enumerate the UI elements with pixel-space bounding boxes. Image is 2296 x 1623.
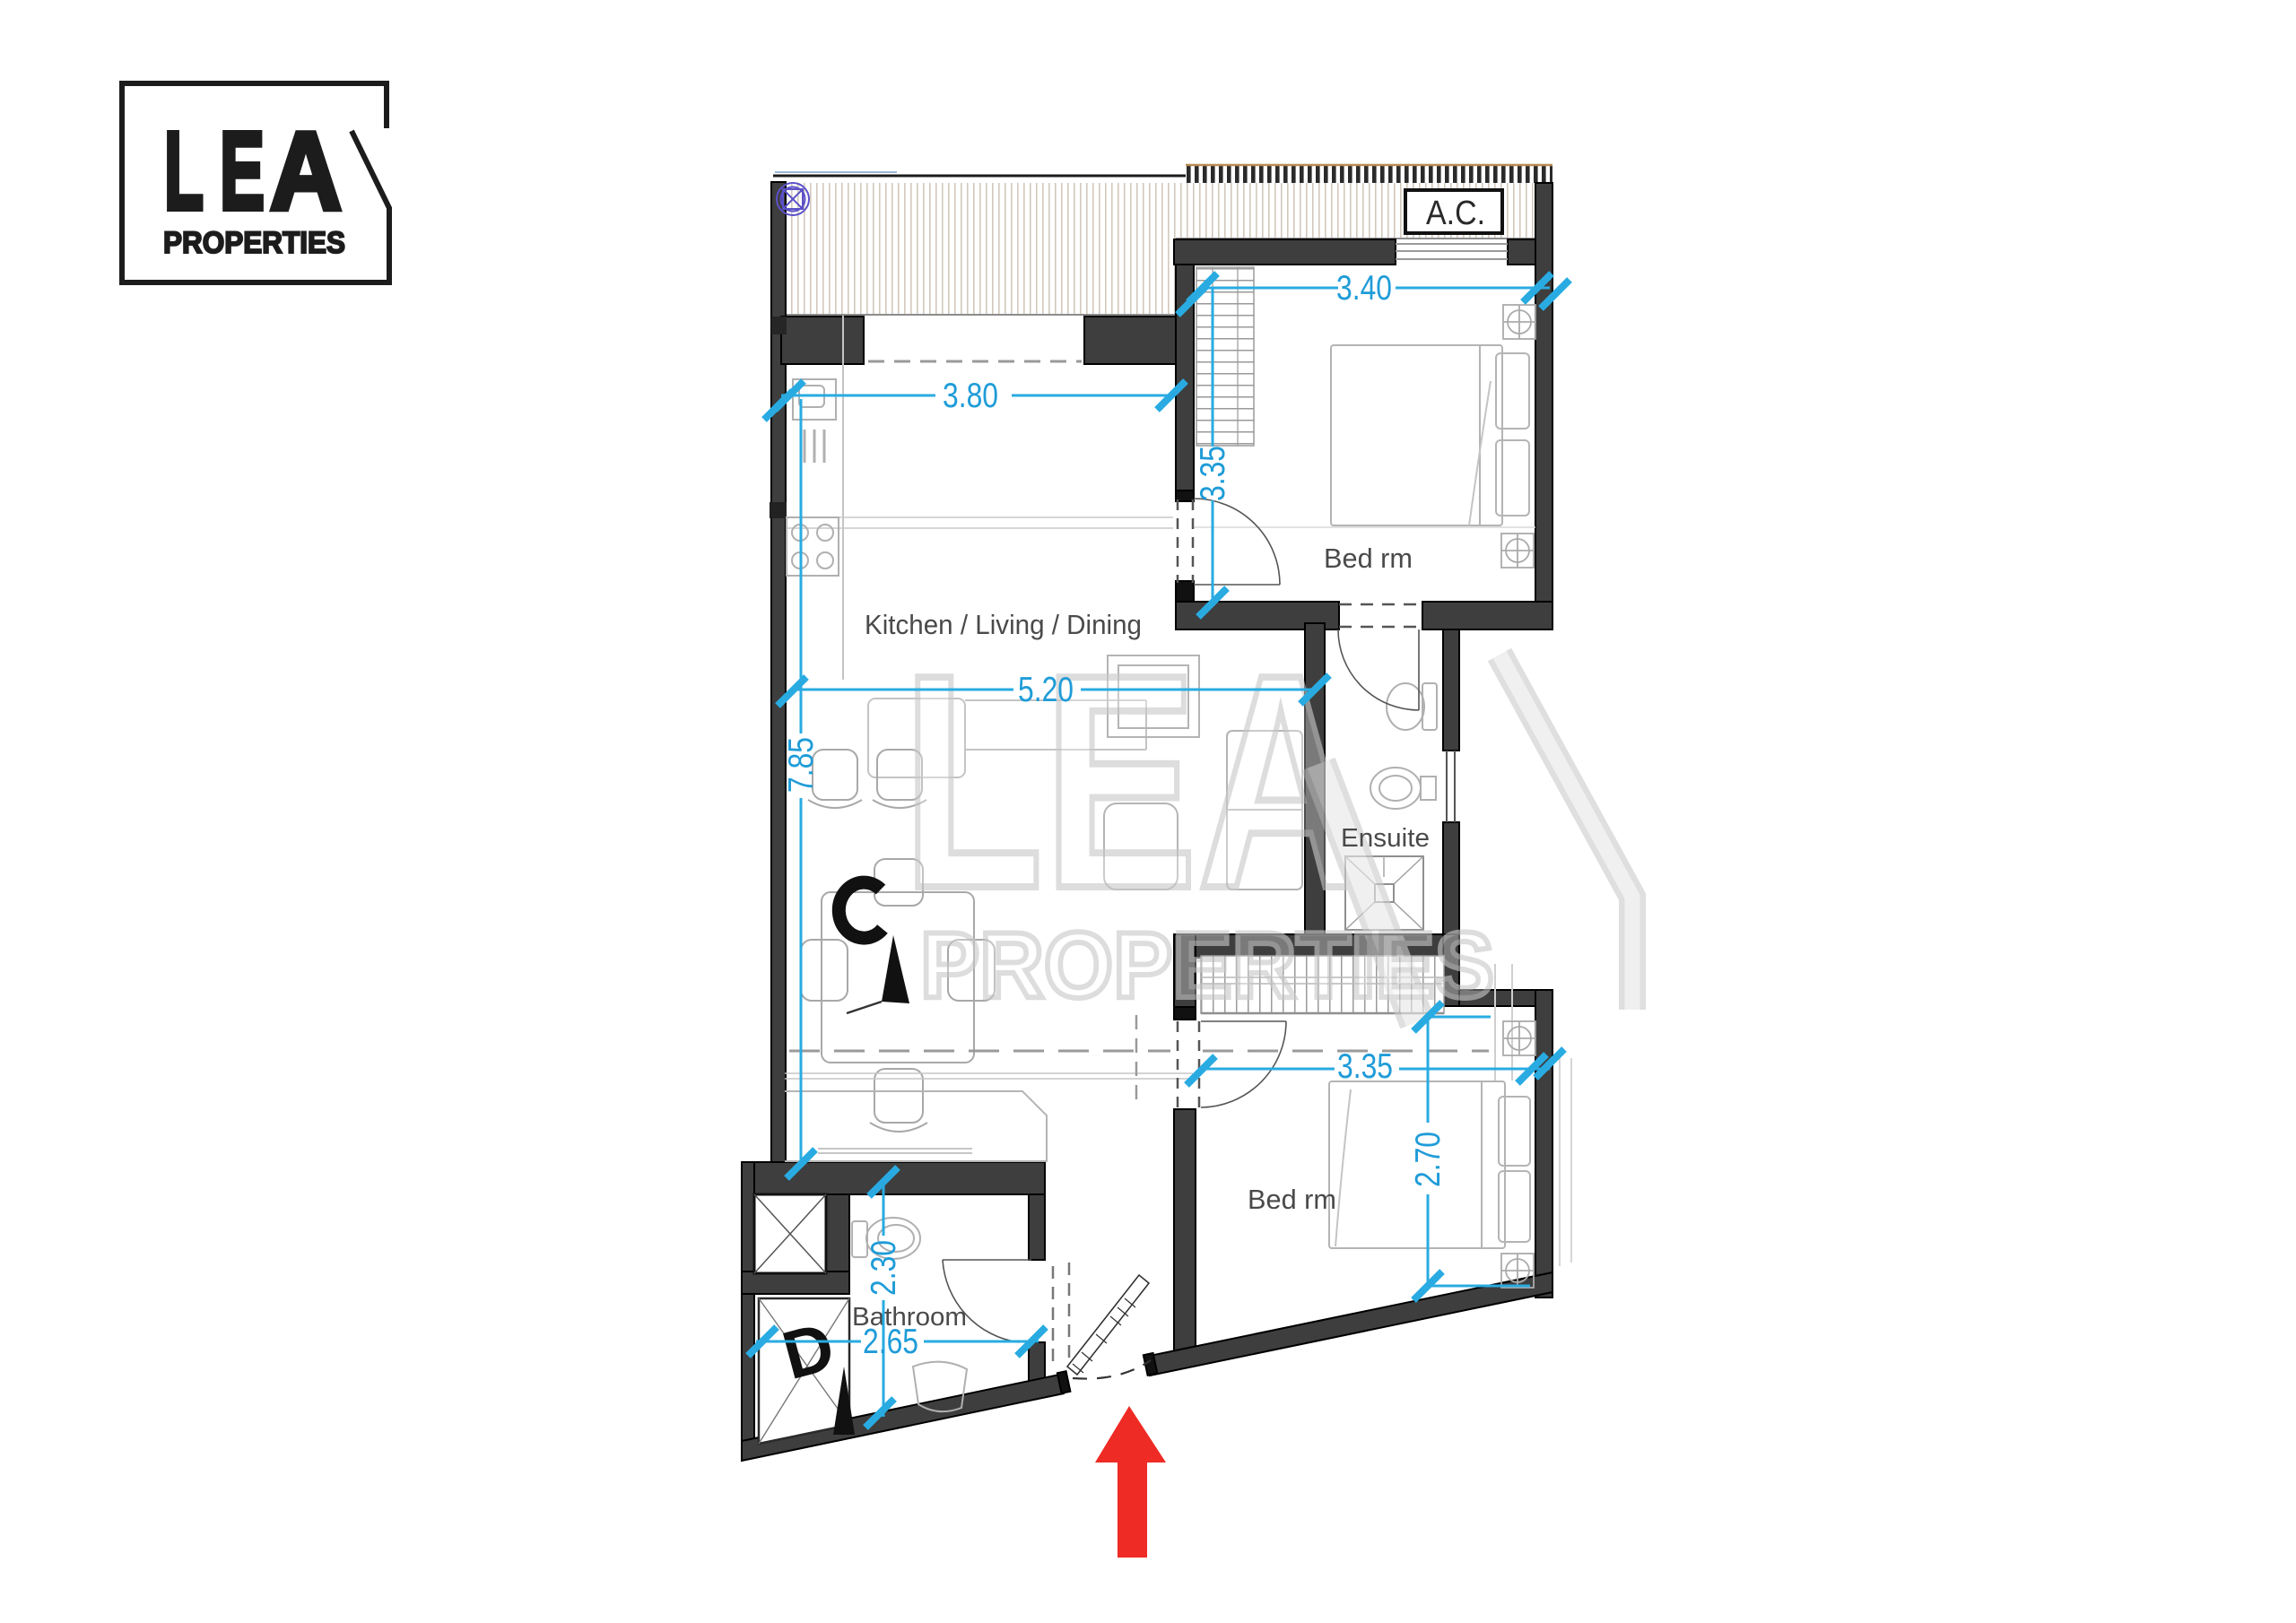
svg-text:LEA: LEA	[902, 612, 1364, 952]
svg-text:PROPERTIES: PROPERTIES	[163, 226, 345, 260]
svg-text:Ensuite: Ensuite	[1341, 824, 1430, 853]
svg-text:A.C.: A.C.	[1426, 195, 1485, 232]
svg-text:3.40: 3.40	[1336, 269, 1392, 308]
svg-text:7.85: 7.85	[782, 737, 821, 793]
svg-text:A: A	[270, 110, 342, 233]
svg-text:3.35: 3.35	[1337, 1047, 1393, 1086]
svg-text:Bed rm: Bed rm	[1324, 542, 1413, 574]
svg-text:2.70: 2.70	[1409, 1132, 1448, 1187]
svg-text:3.80: 3.80	[943, 377, 998, 415]
svg-text:L: L	[164, 110, 204, 233]
svg-text:2.30: 2.30	[865, 1240, 903, 1296]
svg-text:PROPERTIES: PROPERTIES	[920, 914, 1494, 1018]
svg-text:Bed rm: Bed rm	[1248, 1184, 1336, 1215]
svg-text:5.20: 5.20	[1018, 671, 1074, 709]
svg-text:Kitchen / Living / Dining: Kitchen / Living / Dining	[865, 609, 1142, 640]
svg-text:2.65: 2.65	[863, 1323, 918, 1361]
svg-text:E: E	[220, 110, 265, 233]
svg-text:3.35: 3.35	[1194, 446, 1232, 501]
